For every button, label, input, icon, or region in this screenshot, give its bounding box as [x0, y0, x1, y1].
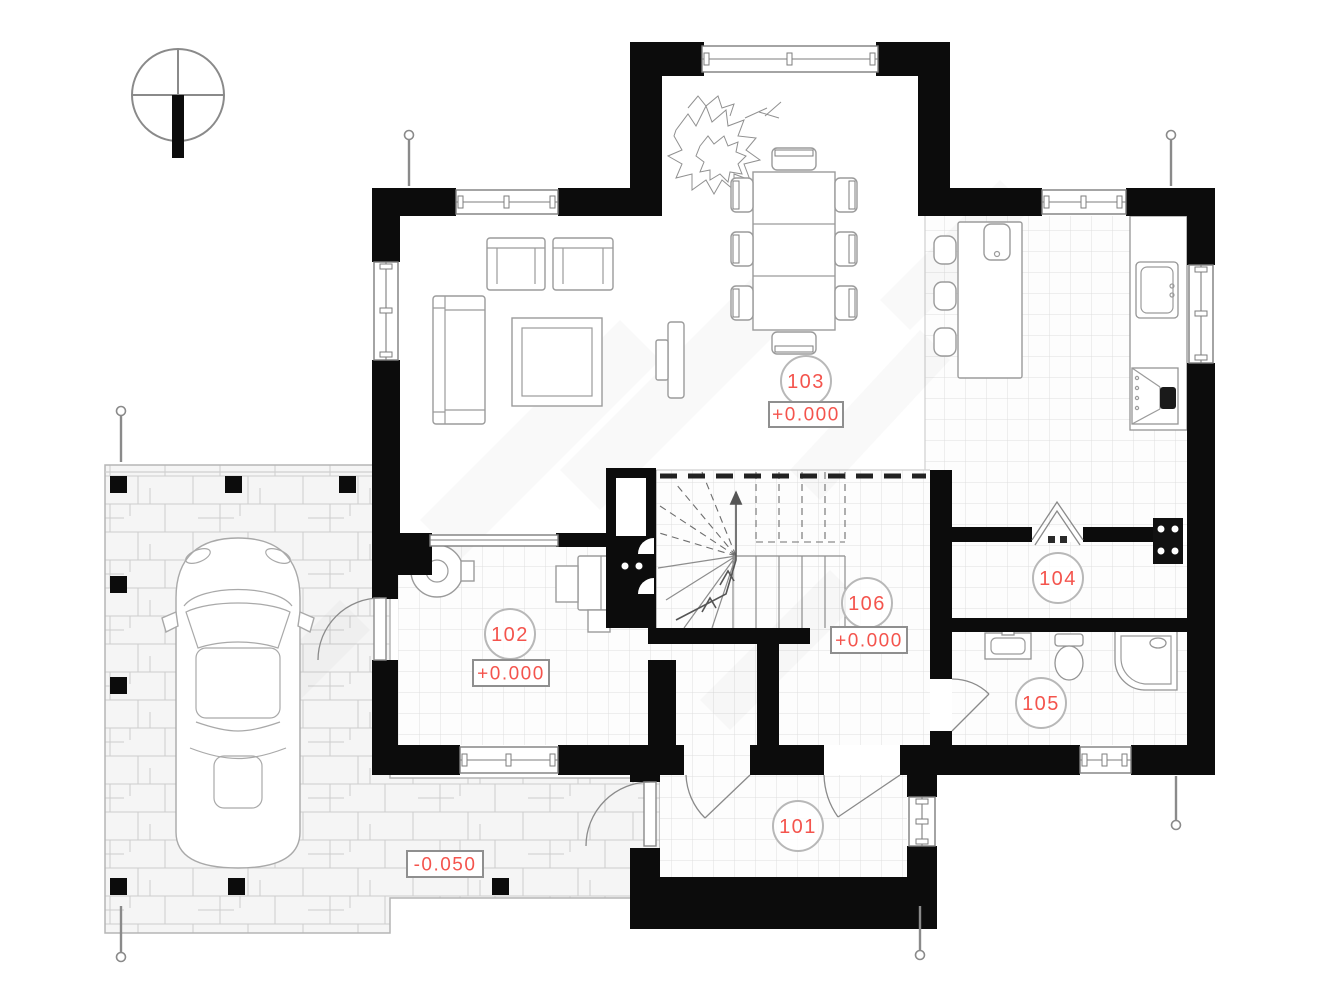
room-number-104: 104 [1039, 568, 1077, 590]
room-label-106: 106 [842, 578, 892, 628]
elevation-value-103: +0.000 [772, 405, 840, 426]
room-label-102: 102 [485, 609, 535, 659]
elevation-marker-terrace: -0.050 [407, 851, 483, 877]
room-number-102: 102 [491, 624, 529, 646]
elevation-marker-103: +0.000 [769, 402, 843, 427]
north-arrow-icon [132, 49, 224, 158]
shower [1115, 630, 1177, 690]
window-living-top [456, 190, 558, 214]
elevation-value-102: +0.000 [477, 664, 545, 685]
kitchen-sink [1136, 262, 1178, 318]
room-label-104: 104 [1033, 553, 1083, 603]
window-living-left [374, 262, 398, 360]
elevation-value-106: +0.000 [835, 631, 903, 652]
elevation-marker-106: +0.000 [831, 627, 907, 653]
window-kitchen-top [1042, 190, 1126, 214]
floor-plan: 103 +0.000 102 +0.000 106 +0.000 104 [0, 0, 1333, 1000]
room-number-101: 101 [779, 816, 817, 838]
room-number-105: 105 [1022, 693, 1060, 715]
glass-partition [430, 535, 558, 546]
bar-stools [934, 236, 956, 356]
bathroom-sink [985, 629, 1031, 659]
room-label-101: 101 [773, 801, 823, 851]
room-label-103: 103 [781, 356, 831, 406]
room-number-103: 103 [787, 371, 825, 393]
stove [1132, 368, 1178, 424]
room-number-106: 106 [848, 593, 886, 615]
window-bay-top [702, 46, 878, 72]
window-entry-right [909, 797, 935, 846]
toilet [1055, 634, 1083, 680]
window-bath-bottom [1080, 747, 1131, 773]
window-utility-bottom [460, 747, 558, 773]
elevation-marker-102: +0.000 [473, 660, 549, 686]
room-label-105: 105 [1016, 678, 1066, 728]
car-top-view-icon [162, 538, 314, 868]
elevation-value-terrace: -0.050 [414, 855, 477, 876]
window-kitchen-right [1189, 265, 1213, 363]
